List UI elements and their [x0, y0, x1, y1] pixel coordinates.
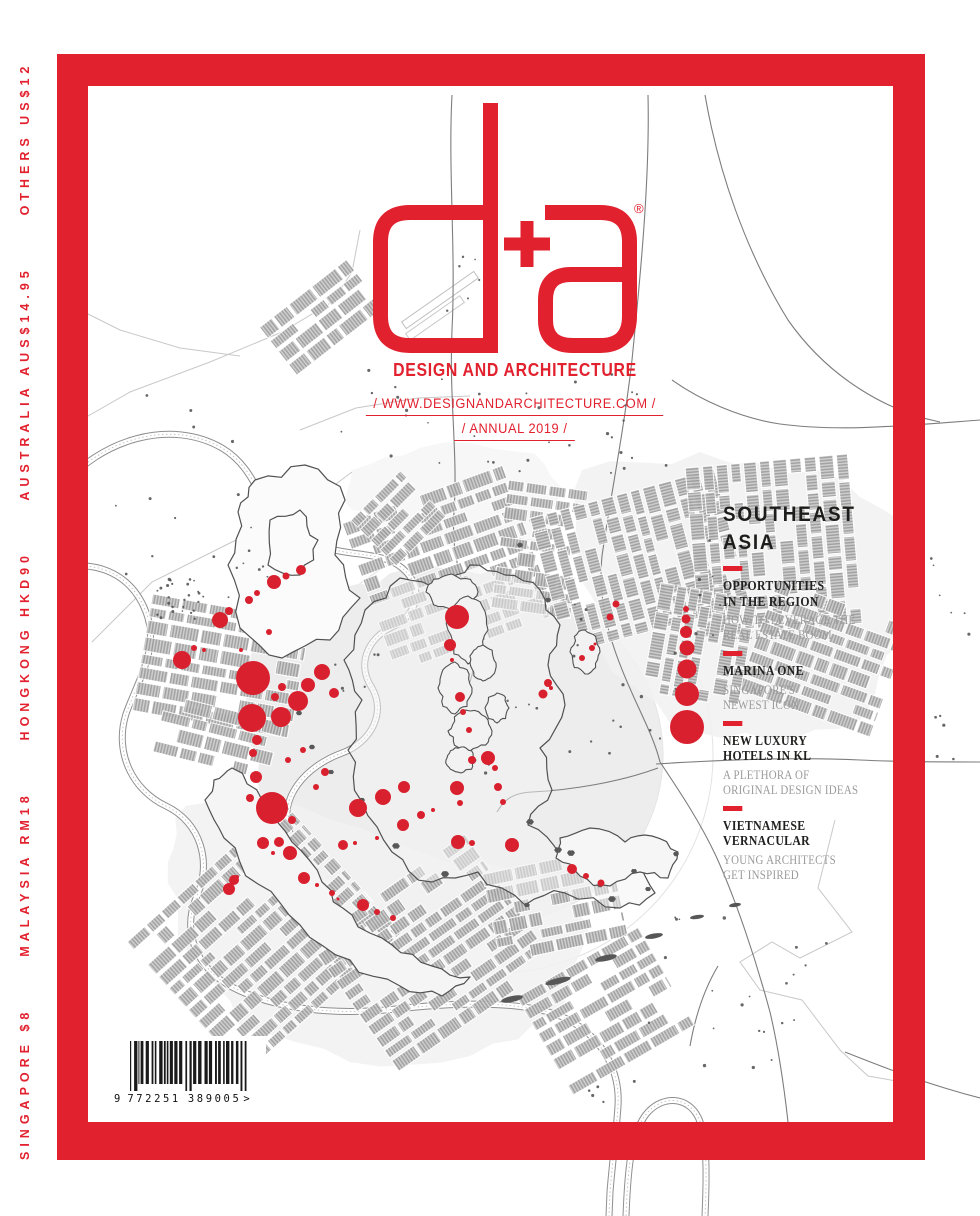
magazine-tagline: DESIGN AND ARCHITECTURE: [339, 360, 691, 381]
barcode-suffix: >: [243, 1093, 249, 1105]
da-logo: ®: [355, 95, 655, 367]
issue-line-wrap: / ANNUAL 2019 /: [315, 420, 715, 441]
issue-annual-2019: / ANNUAL 2019 /: [455, 421, 576, 441]
article-rule: [723, 721, 742, 726]
article-rule: [723, 806, 742, 811]
article-rule: [723, 651, 742, 656]
barcode-number: 9 772251 389005 >: [114, 1093, 264, 1105]
article-title[interactable]: VIETNAMESEVERNACULAR: [723, 819, 909, 850]
article-title[interactable]: OPPORTUNITIESIN THE REGION: [723, 579, 909, 610]
article-subtitle: YOUNG ARCHITECTSGET INSPIRED: [723, 852, 909, 882]
barcode-digits-mid: 772251: [127, 1093, 181, 1105]
article-subtitle: SINGAPORE'SNEWEST ICON: [723, 682, 909, 712]
price-spine-text: SINGAPORE $8 MALAYSIA RM18 HONGKONG HKD9…: [10, 155, 40, 1160]
cover-headline-block: SOUTHEASTASIA OPPORTUNITIESIN THE REGION…: [723, 501, 908, 882]
region-title-line1: SOUTHEAST: [723, 503, 856, 526]
logo-a-stroke: [545, 213, 630, 346]
article-subtitle: HOW-TO LEVERAGE THEREAL ESTATE BOOM: [723, 612, 909, 642]
barcode-bars: [110, 1040, 266, 1092]
article-rule: [723, 566, 742, 571]
region-title: SOUTHEASTASIA: [723, 501, 890, 557]
website-line-wrap: / WWW.DESIGNANDARCHITECTURE.COM /: [315, 395, 715, 416]
website-url[interactable]: / WWW.DESIGNANDARCHITECTURE.COM /: [366, 396, 664, 416]
region-title-line2: ASIA: [723, 531, 775, 554]
logo-d-bowl: [381, 213, 491, 346]
registered-mark: ®: [634, 201, 644, 216]
article-title[interactable]: NEW LUXURYHOTELS IN KL: [723, 734, 909, 765]
barcode-digit-left: 9: [114, 1093, 120, 1105]
article-subtitle: A PLETHORA OFORIGINAL DESIGN IDEAS: [723, 767, 909, 797]
barcode: 9 772251 389005 >: [110, 1036, 266, 1110]
magazine-cover: SINGAPORE $8 MALAYSIA RM18 HONGKONG HKD9…: [0, 0, 980, 1216]
article-list: OPPORTUNITIESIN THE REGIONHOW-TO LEVERAG…: [723, 566, 909, 882]
barcode-digits-right: 389005: [188, 1093, 242, 1105]
article-title[interactable]: MARINA ONE: [723, 664, 909, 680]
